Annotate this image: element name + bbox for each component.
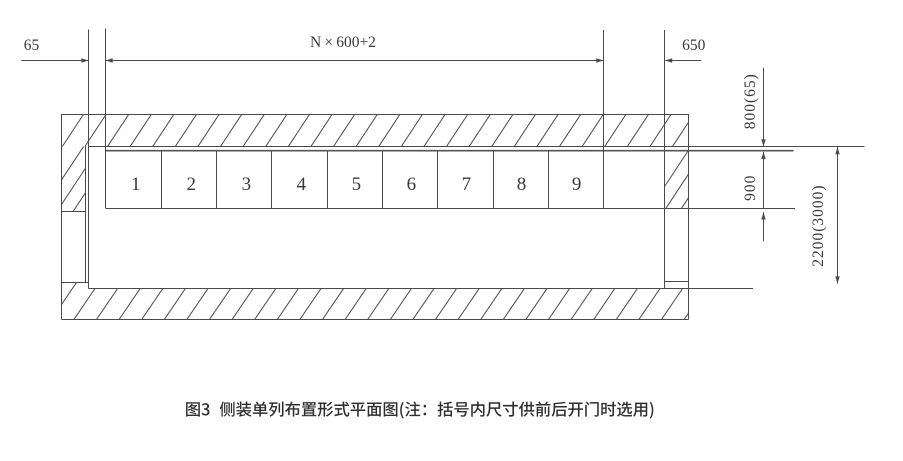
svg-text:65: 65: [24, 37, 40, 54]
svg-text:2: 2: [187, 174, 197, 195]
svg-text:7: 7: [462, 174, 472, 195]
svg-text:1: 1: [131, 174, 141, 195]
svg-text:5: 5: [352, 174, 362, 195]
svg-text:N × 600+2: N × 600+2: [310, 34, 376, 51]
svg-text:9: 9: [572, 174, 582, 195]
svg-text:6: 6: [407, 174, 417, 195]
svg-text:4: 4: [297, 174, 307, 195]
svg-text:900: 900: [742, 175, 759, 201]
svg-text:650: 650: [682, 37, 706, 54]
svg-text:800(65): 800(65): [742, 73, 759, 129]
svg-text:8: 8: [517, 174, 527, 195]
svg-text:3: 3: [242, 174, 252, 195]
svg-text:2200(3000): 2200(3000): [810, 184, 827, 266]
